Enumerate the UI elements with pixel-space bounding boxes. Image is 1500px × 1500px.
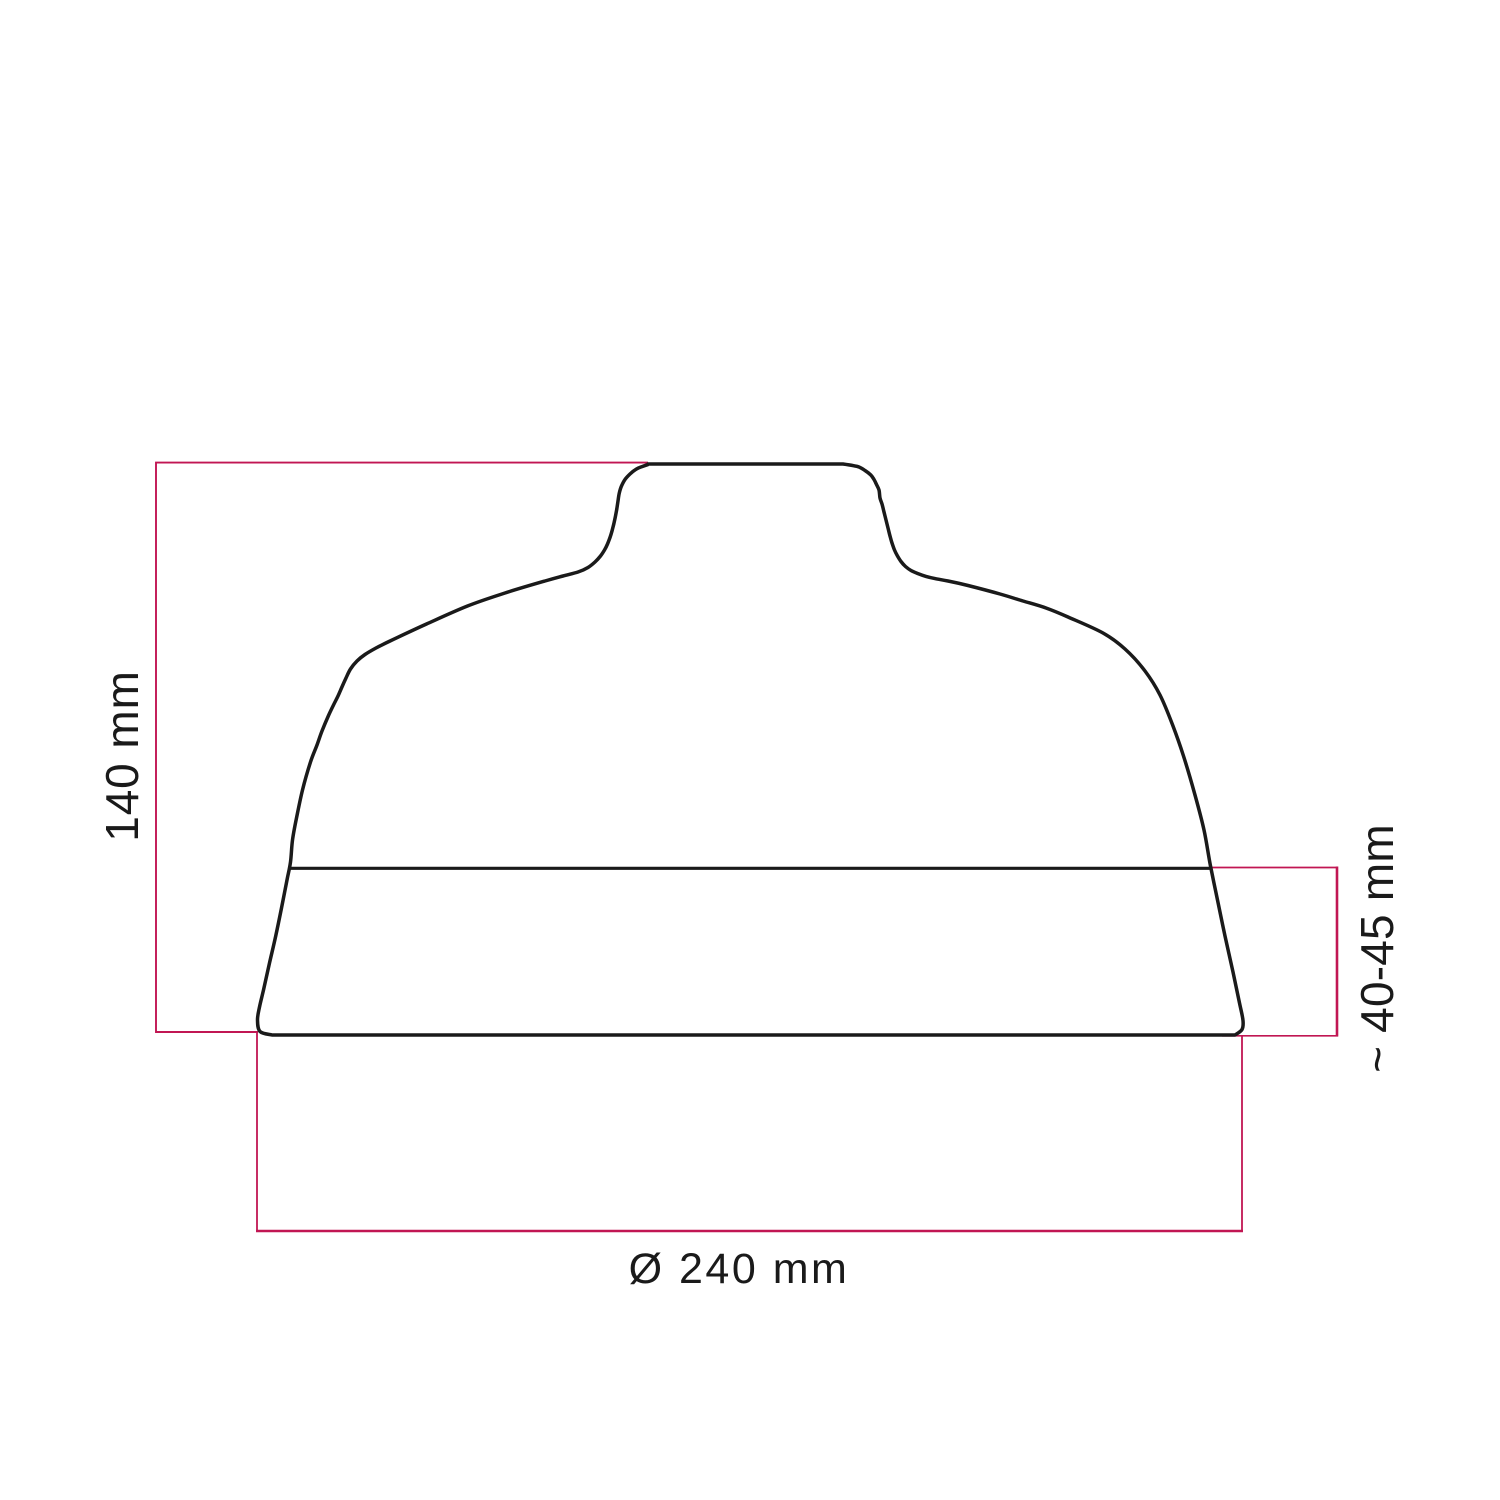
svg-text:~ 40-45 mm: ~ 40-45 mm [1351, 824, 1403, 1073]
svg-text:140 mm: 140 mm [96, 670, 148, 842]
svg-text:Ø 240 mm: Ø 240 mm [629, 1245, 850, 1293]
